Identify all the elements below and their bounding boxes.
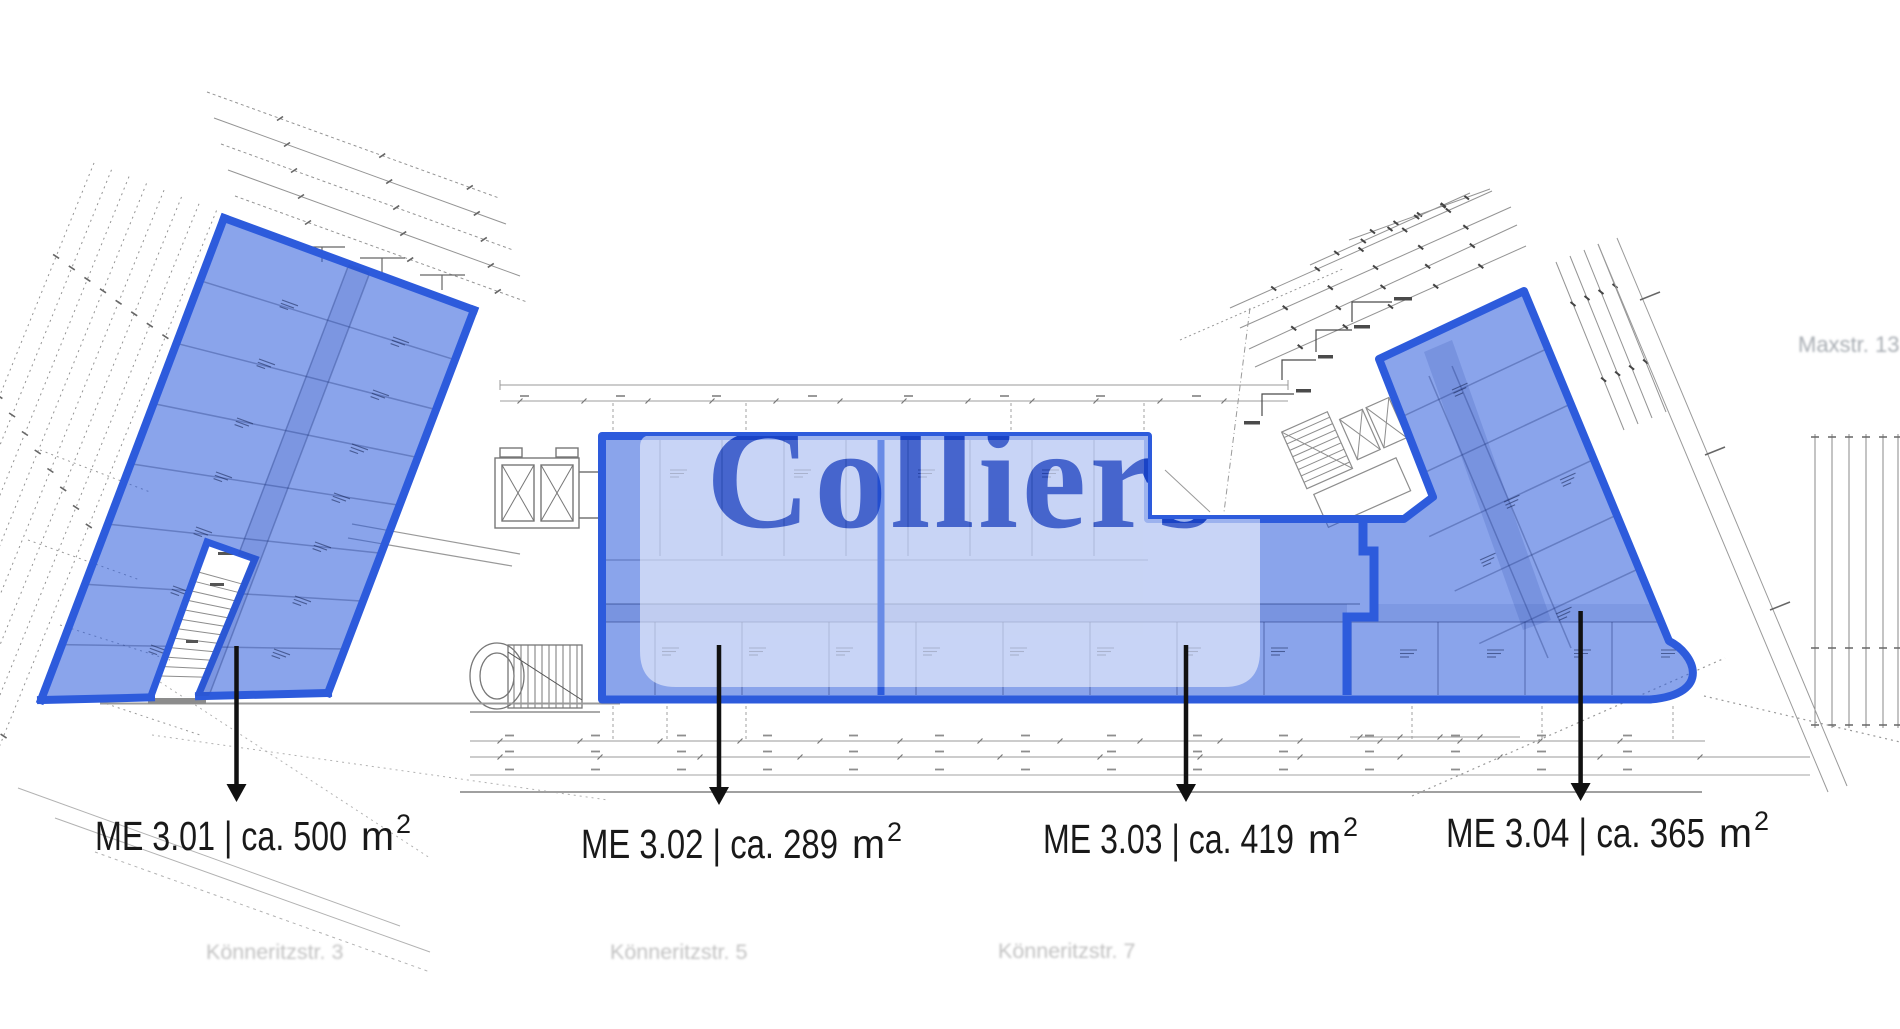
svg-text:ME 3.02 | ca. 289: ME 3.02 | ca. 289 — [581, 821, 838, 867]
svg-text:m: m — [852, 821, 885, 867]
svg-text:ME 3.04 | ca. 365: ME 3.04 | ca. 365 — [1446, 810, 1705, 856]
svg-text:m: m — [1308, 816, 1341, 862]
svg-text:2: 2 — [1343, 812, 1358, 842]
svg-text:ME 3.03 | ca. 419: ME 3.03 | ca. 419 — [1043, 816, 1294, 862]
svg-text:m: m — [361, 813, 394, 859]
svg-text:m: m — [1719, 810, 1752, 856]
svg-text:Maxstr. 13: Maxstr. 13 — [1798, 332, 1899, 357]
svg-text:ME 3.01 | ca. 500: ME 3.01 | ca. 500 — [95, 813, 347, 859]
svg-text:Könneritzstr. 7: Könneritzstr. 7 — [998, 939, 1135, 963]
svg-text:Könneritzstr. 3: Könneritzstr. 3 — [206, 940, 343, 964]
svg-text:2: 2 — [887, 817, 902, 847]
svg-text:Könneritzstr. 5: Könneritzstr. 5 — [610, 940, 747, 964]
svg-text:2: 2 — [1754, 806, 1769, 836]
svg-text:2: 2 — [396, 809, 411, 839]
